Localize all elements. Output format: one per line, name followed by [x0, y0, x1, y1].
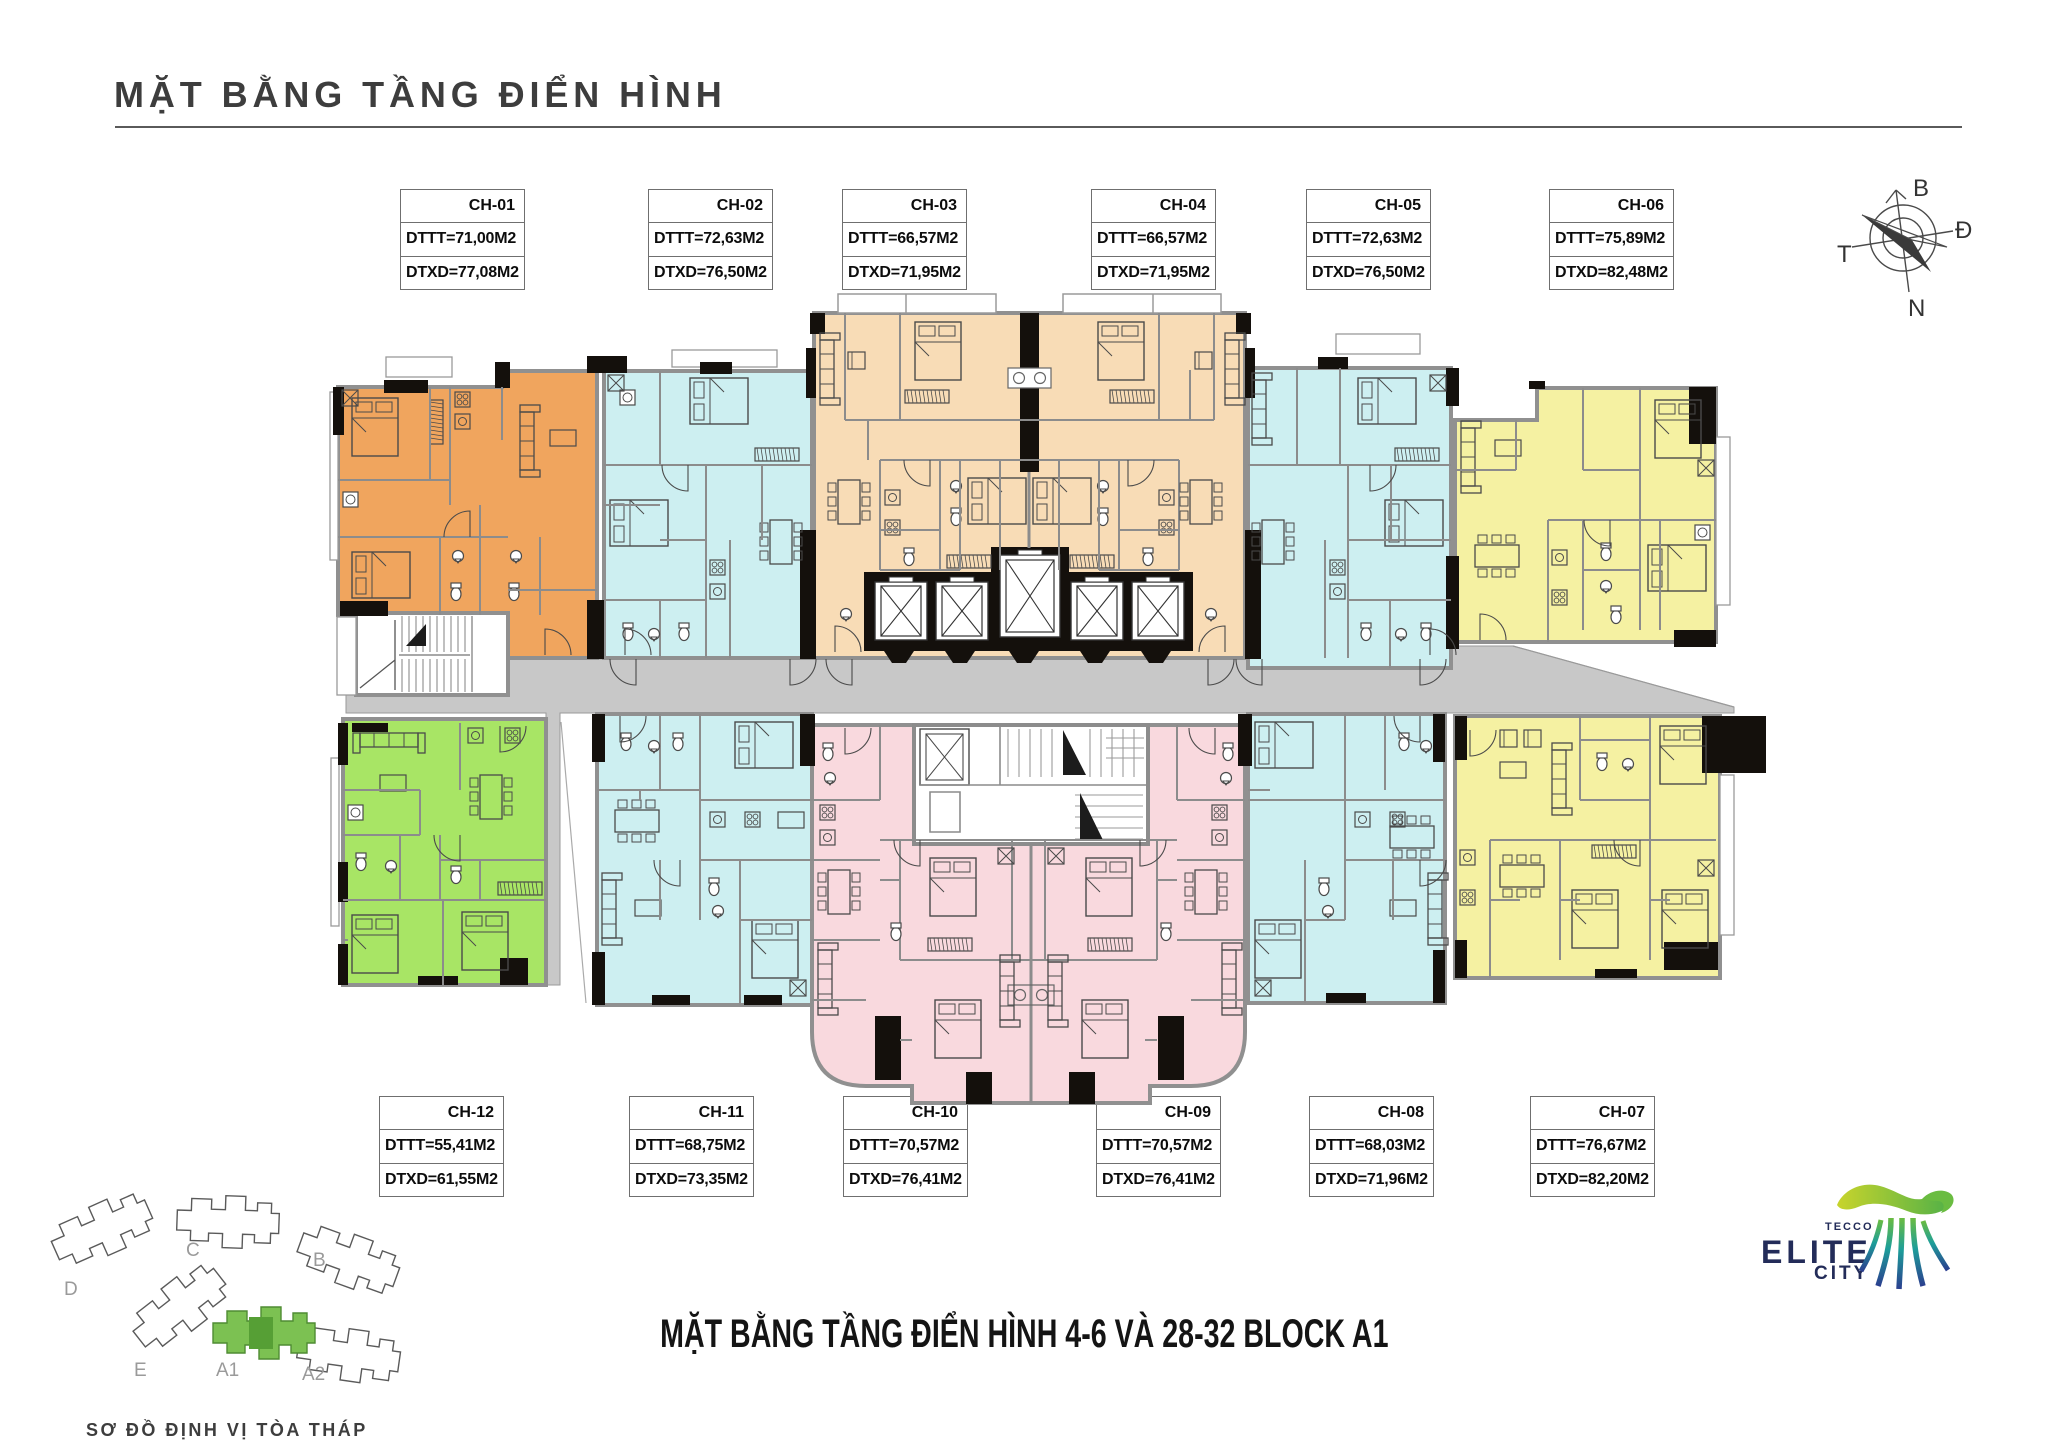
svg-text:A2: A2 — [302, 1364, 325, 1385]
svg-text:B: B — [313, 1250, 326, 1271]
svg-text:T: T — [1837, 241, 1852, 268]
svg-text:A1: A1 — [216, 1360, 239, 1381]
svg-text:D: D — [64, 1279, 78, 1300]
svg-text:Đ: Đ — [1955, 217, 1972, 244]
svg-text:E: E — [134, 1360, 147, 1381]
svg-text:B: B — [1913, 175, 1929, 202]
svg-text:C: C — [186, 1240, 200, 1261]
svg-text:N: N — [1908, 295, 1925, 322]
